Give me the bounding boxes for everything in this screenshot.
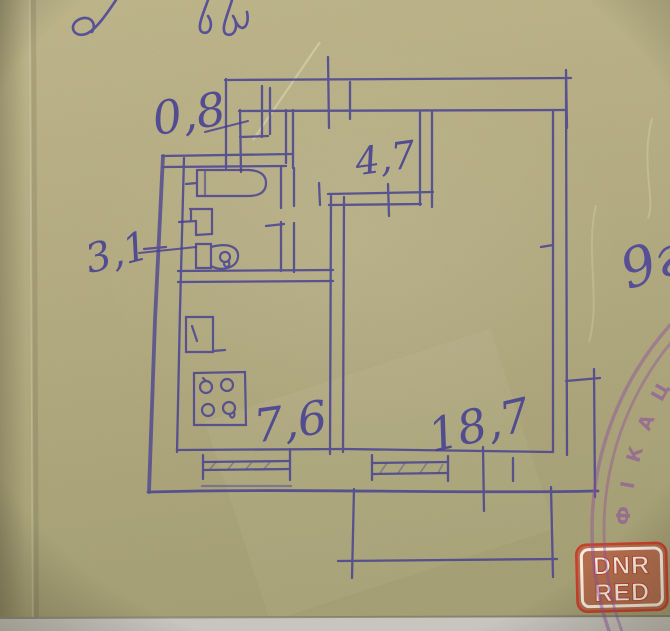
floor-plan-drawing: 0,8 4,7 3,1 7,6 18,7 9г DNR RED Ф І К А … — [0, 0, 670, 631]
scanned-floor-plan-photo: 0,8 4,7 3,1 7,6 18,7 9г DNR RED Ф І К А … — [0, 0, 670, 631]
photo-vignette — [0, 0, 670, 631]
